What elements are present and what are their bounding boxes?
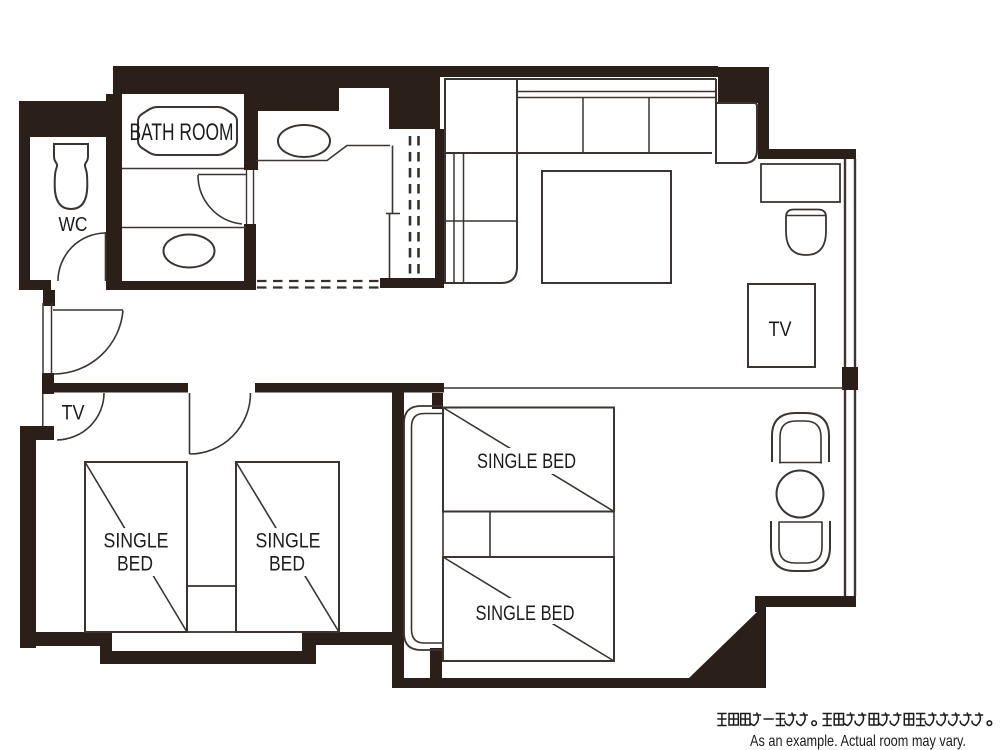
svg-text:BATH ROOM: BATH ROOM [130, 119, 234, 146]
svg-text:SINGLE BED: SINGLE BED [477, 449, 576, 473]
svg-text:SINGLE BED: SINGLE BED [476, 601, 575, 625]
svg-text:WC: WC [59, 213, 88, 236]
svg-text:As an example. Actual room may: As an example. Actual room may vary. [750, 733, 966, 750]
svg-text:TV: TV [62, 402, 85, 425]
svg-text:BED: BED [117, 553, 153, 576]
svg-text:BED: BED [269, 553, 305, 576]
svg-text:TV: TV [769, 318, 792, 341]
svg-text:SINGLE: SINGLE [104, 530, 169, 553]
svg-text:SINGLE: SINGLE [256, 530, 321, 553]
